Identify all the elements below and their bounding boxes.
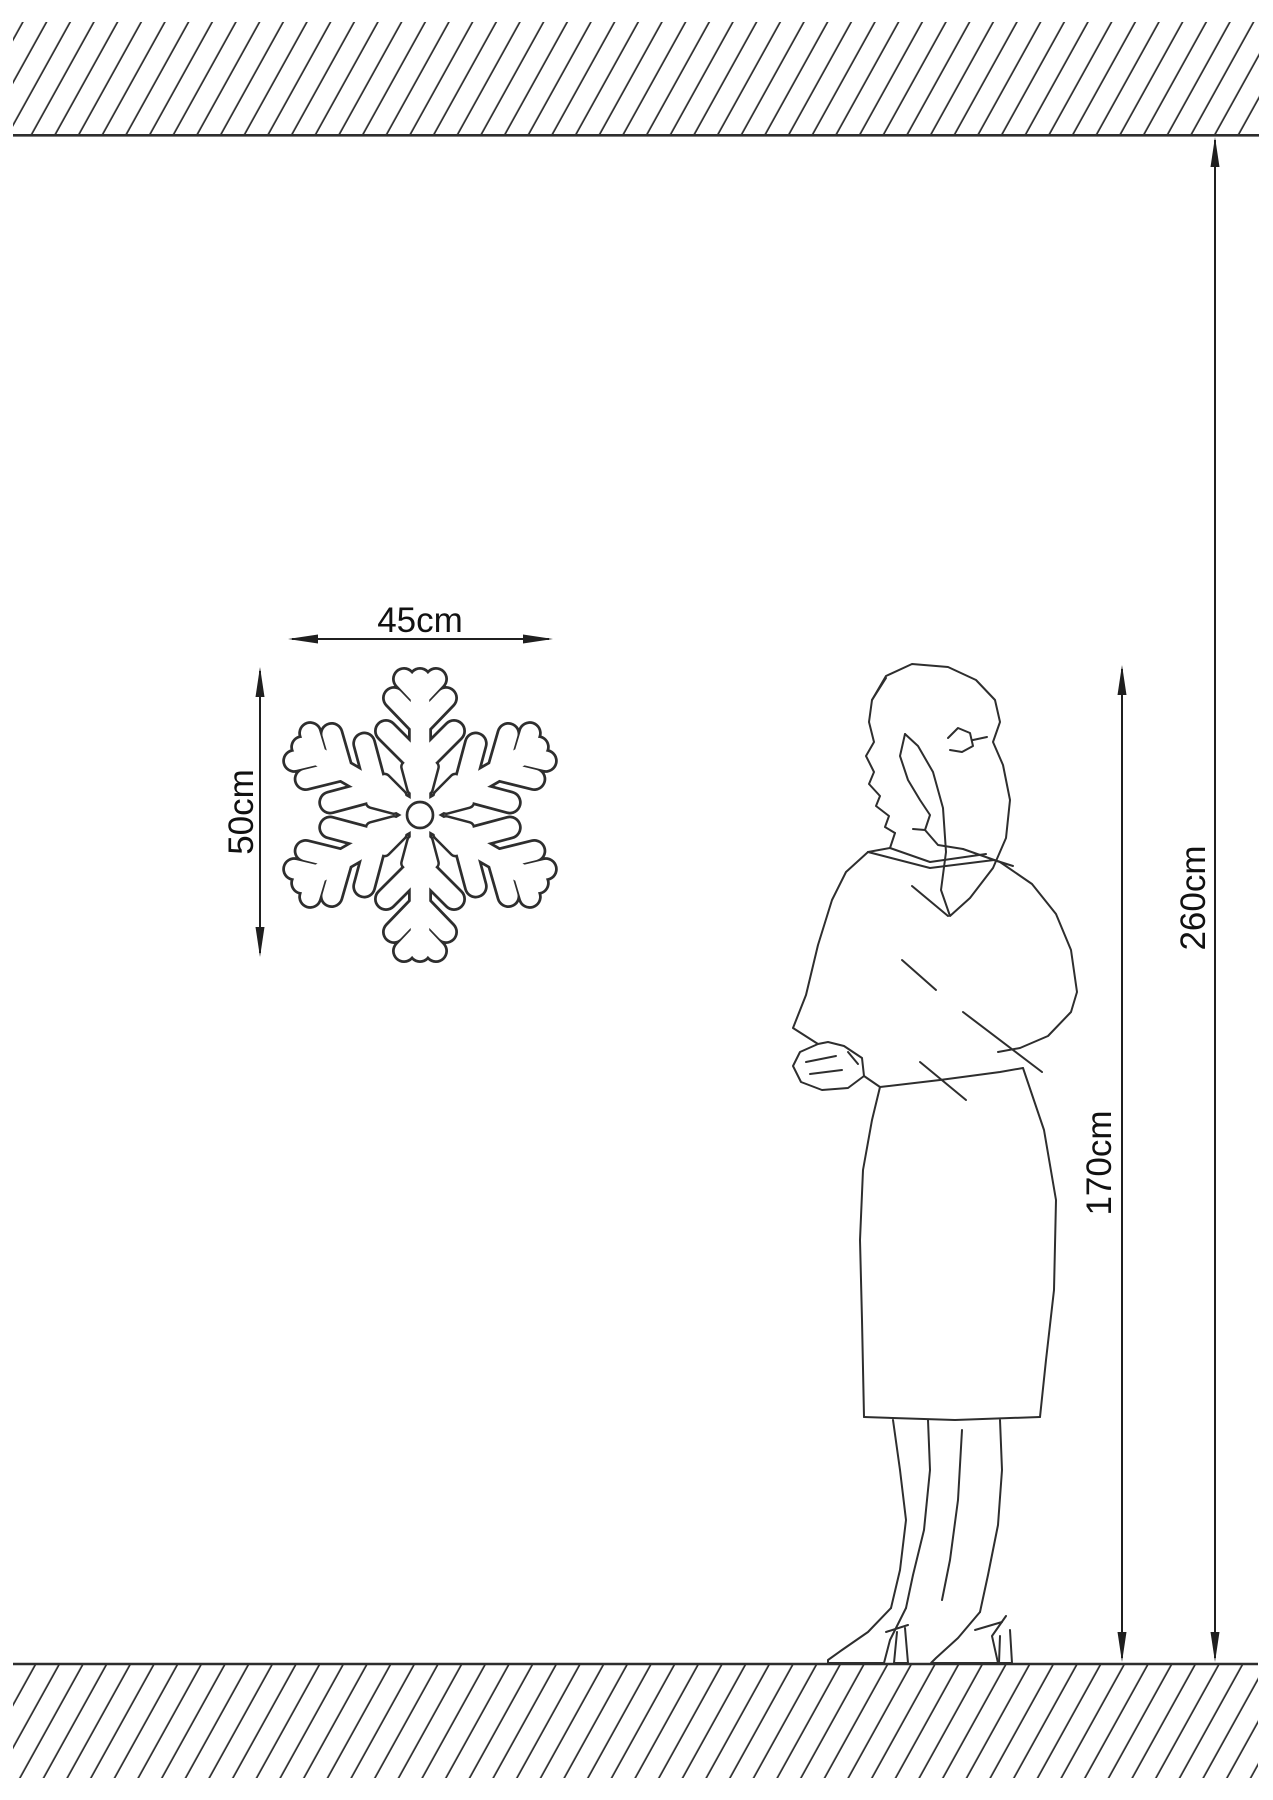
diagram-canvas (0, 0, 1273, 1800)
person-height-label: 170cm (1080, 1073, 1120, 1253)
item-width-label: 45cm (340, 601, 500, 641)
person-skirt-hem (864, 1417, 1040, 1420)
size-diagram: 45cm 50cm 170cm 260cm (0, 0, 1273, 1800)
person-hair (872, 664, 1010, 916)
person-ear (948, 728, 973, 752)
person-back-shoe (931, 1612, 1006, 1663)
person-figure (793, 664, 1077, 1663)
ceiling-height-label: 260cm (1174, 808, 1214, 988)
snowflake-center-hole (407, 802, 433, 828)
ceiling-hatch-band (13, 22, 1259, 135)
person-back (963, 849, 1077, 1052)
person-face (866, 678, 895, 833)
person-skirt-left (860, 1087, 880, 1417)
person-left-arm (793, 852, 868, 1044)
person-jaw (900, 734, 930, 830)
person-skirt-right (1023, 1068, 1056, 1417)
floor-hatch-band (13, 1664, 1258, 1778)
person-hands (793, 1042, 864, 1090)
person-jacket-hem (864, 1068, 1023, 1087)
snowflake-graphic (285, 679, 555, 951)
item-height-label: 50cm (222, 722, 262, 902)
